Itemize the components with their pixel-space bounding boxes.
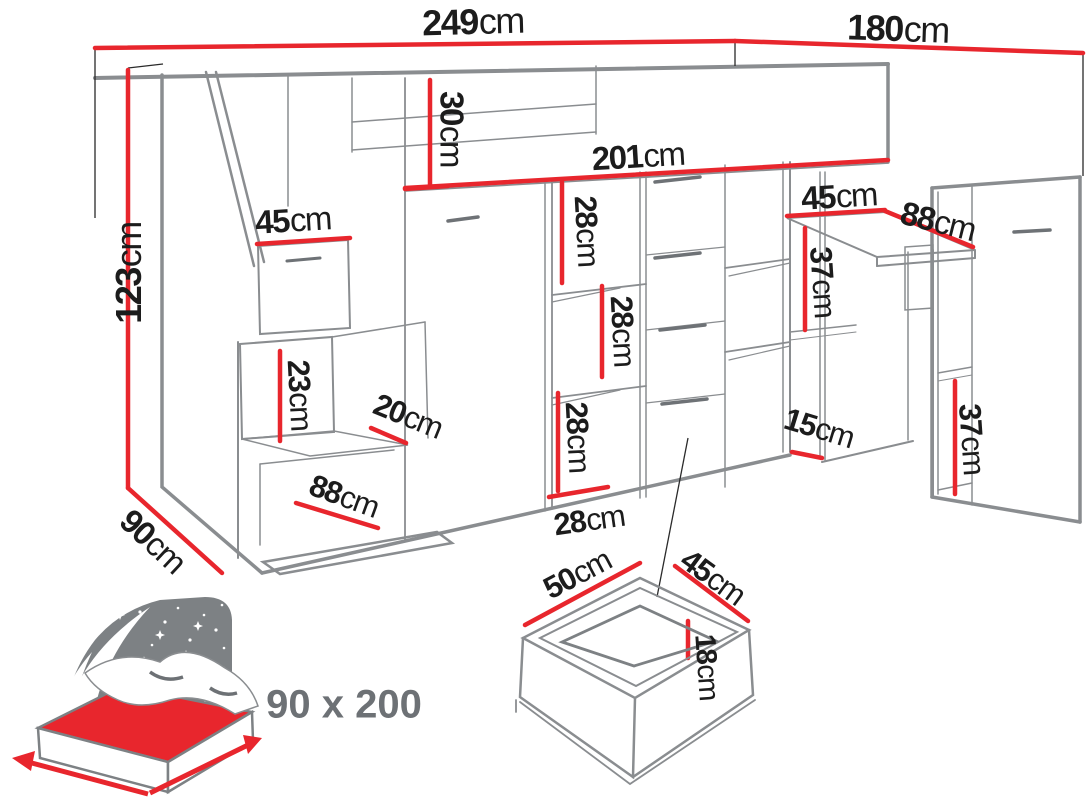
- stairs: [206, 66, 596, 574]
- bed-size-label: 90 x 200: [266, 683, 422, 728]
- dim-shelf-gap-bottom: 28cm: [561, 401, 596, 473]
- dim-drawer-height: 18cm: [689, 633, 723, 701]
- dim-shelf-gap-middle: 28cm: [606, 295, 641, 367]
- dim-platform-thickness: 30cm: [436, 91, 469, 167]
- dim-bookcase-gap-height: 37cm: [954, 403, 990, 476]
- dim-height: 123cm: [111, 222, 147, 324]
- dim-total-width: 249cm: [422, 3, 524, 42]
- furniture-dimension-diagram: 249cm 180cm 123cm 30cm 201cm 45cm 28cm 2…: [0, 0, 1090, 807]
- dim-side-depth: 180cm: [847, 9, 950, 49]
- dim-step-height: 23cm: [283, 359, 318, 431]
- dim-shelf-gap-top: 28cm: [570, 195, 605, 267]
- furniture-line-art: [0, 0, 1090, 807]
- dim-desk-depth: 45cm: [800, 177, 878, 215]
- bed-icon: [12, 597, 262, 794]
- dim-under-desk-height: 37cm: [805, 246, 841, 319]
- dim-cabinets-width: 201cm: [591, 137, 685, 176]
- dim-line-249: [95, 41, 735, 48]
- dim-stairs-top-depth: 45cm: [254, 201, 332, 239]
- dim-line-15: [792, 452, 822, 458]
